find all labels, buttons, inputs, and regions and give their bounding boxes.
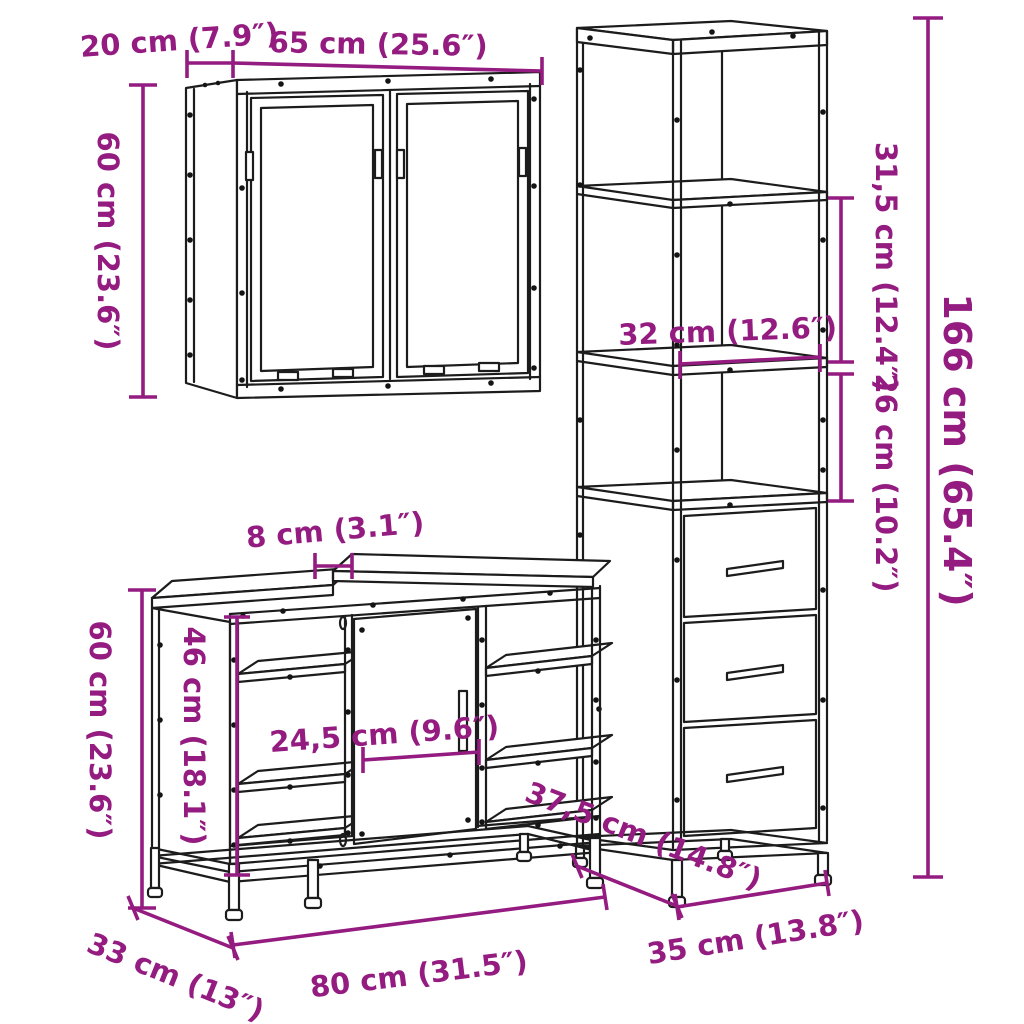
door-hinge (519, 148, 526, 176)
tall-drawer-1 (684, 508, 816, 617)
dim-tall-top-section-label: 31,5 cm (12.4″) (869, 142, 903, 392)
vanity-top (152, 554, 610, 608)
dim-vanity-width: 80 cm (31.5″) (231, 884, 607, 1004)
dim-vanity-width-label: 80 cm (31.5″) (308, 944, 529, 1004)
vanity-leg-back-left (151, 848, 159, 888)
dim-wall-depth: 20 cm (7.9″) (79, 16, 280, 78)
dim-tall-open-section-label: 26 cm (10.2″) (869, 374, 903, 593)
dim-wall-width-label: 65 cm (25.6″) (268, 25, 488, 63)
vanity-foot-front-left (226, 910, 242, 920)
vanity-foot-back-right (517, 852, 531, 861)
vanity-leg-back-right (520, 834, 528, 852)
door-handle (278, 372, 298, 380)
dim-tall-total-height: 166 cm (65.4″) (913, 18, 979, 877)
dim-vanity-height: 60 cm (23.6″) (83, 590, 156, 908)
dim-vanity-depth-label: 33 cm (13″) (82, 926, 269, 1024)
tall-drawer-2 (684, 615, 816, 722)
vanity-foot-back-left (148, 888, 162, 897)
vanity-leg-front-mid (308, 860, 318, 898)
dim-tall-total-height-label: 166 cm (65.4″) (935, 293, 979, 606)
dim-tall-top-section: 31,5 cm (12.4″) (828, 142, 903, 392)
dim-wall-height: 60 cm (23.6″) (91, 85, 157, 397)
dim-wall-height-label: 60 cm (23.6″) (91, 132, 125, 351)
tall-shelf-1 (577, 179, 827, 208)
dim-vanity-gap-label: 8 cm (3.1″) (245, 505, 426, 554)
door-hinge (375, 150, 382, 178)
door-handle (479, 363, 499, 371)
dim-wall-depth-label: 20 cm (7.9″) (79, 16, 280, 64)
vanity-foot-front-right (587, 878, 603, 888)
dimension-diagram: 20 cm (7.9″) 65 cm (25.6″) 60 cm (23.6″)… (0, 0, 1024, 1024)
tall-cabinet (573, 21, 831, 907)
dim-tall-inner-width-label: 32 cm (12.6″) (618, 310, 838, 352)
dim-vanity-inner-height-label: 46 cm (18.1″) (177, 627, 211, 846)
door-handle (333, 369, 353, 377)
vanity-foot-front-mid (305, 898, 321, 908)
dim-tall-open-section: 26 cm (10.2″) (828, 374, 903, 593)
figure-svg: 20 cm (7.9″) 65 cm (25.6″) 60 cm (23.6″)… (0, 0, 1024, 1024)
dim-vanity-height-label: 60 cm (23.6″) (83, 621, 117, 840)
tall-shelf-3 (577, 480, 827, 510)
door-hinge (397, 150, 404, 178)
door-hinge (246, 152, 253, 180)
wall-cabinet (186, 72, 540, 398)
door-handle (424, 366, 444, 374)
